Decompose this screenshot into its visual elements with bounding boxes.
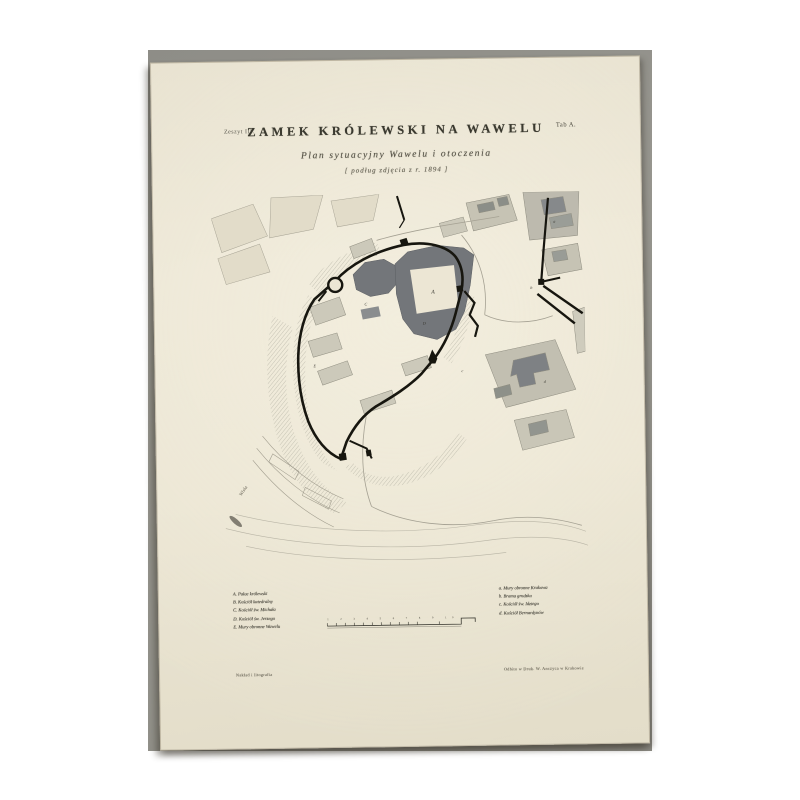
cathedral-block bbox=[353, 259, 402, 320]
map-illustration: Wisła bbox=[211, 191, 589, 576]
legend-item: d. Kościół Bernardynów bbox=[499, 608, 548, 617]
bastion-tower bbox=[328, 278, 342, 292]
marker-city-walls: a bbox=[553, 219, 555, 224]
subtitle-script: Plan sytuacyjny Wawelu i otoczenia bbox=[152, 146, 640, 163]
legend-item: E. Mury obronne Wawelu bbox=[233, 623, 280, 632]
imprint-right: Odbito w Druk. W. Anczyca w Krakowie bbox=[504, 665, 584, 671]
imprint-left: Nakład i litografia bbox=[236, 672, 272, 678]
river-vistula bbox=[211, 438, 291, 575]
city-gate bbox=[538, 279, 544, 285]
page-title: ZAMEK KRÓLEWSKI NA WAWELU bbox=[152, 119, 640, 141]
marker-walls: E bbox=[312, 363, 316, 368]
marker-gate: b bbox=[530, 285, 532, 290]
marker-palace: A bbox=[430, 289, 435, 295]
scale-bar: 1 2 3 4 5 6 7 8 9 10 bbox=[325, 613, 477, 631]
scale-numbers: 1 2 3 4 5 6 7 8 9 10 bbox=[327, 616, 459, 621]
river-label: Wisła bbox=[239, 485, 250, 497]
wawel-plan-svg: Wisła bbox=[211, 191, 589, 576]
subtitle-note: [ podług zdjęcia z r. 1894 ] bbox=[153, 162, 641, 177]
field-plots bbox=[211, 194, 380, 284]
legend-right: a. Mury obronne Krakowa b. Brama grodzka… bbox=[499, 584, 548, 618]
legend-item: C. Kościół św. Michała bbox=[233, 606, 280, 615]
legend-left: A. Pałac królewski B. Kościół katedralny… bbox=[233, 590, 280, 632]
marker-st-giles: c bbox=[461, 368, 463, 373]
marker-st-michael: C bbox=[364, 301, 367, 306]
marker-st-george: D bbox=[422, 321, 426, 326]
map-sheet: Zeszyt III. Tab A. ZAMEK KRÓLEWSKI NA WA… bbox=[150, 55, 650, 750]
photo-background: Zeszyt III. Tab A. ZAMEK KRÓLEWSKI NA WA… bbox=[148, 50, 652, 751]
